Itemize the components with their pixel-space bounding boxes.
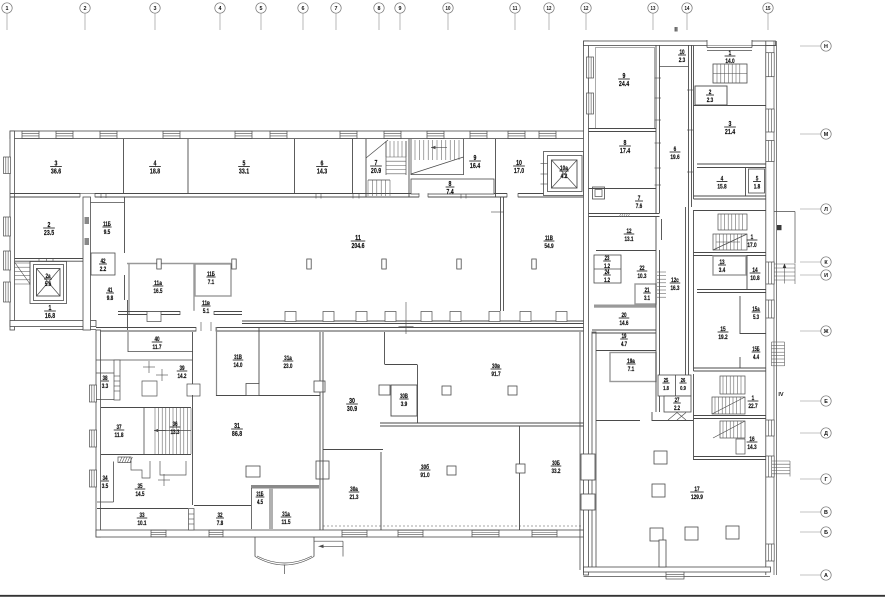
svg-text:86.8: 86.8 bbox=[232, 429, 242, 438]
svg-text:14.0: 14.0 bbox=[233, 362, 242, 369]
svg-text:7.4: 7.4 bbox=[446, 187, 453, 196]
svg-text:204.6: 204.6 bbox=[351, 241, 364, 250]
svg-text:И: И bbox=[824, 273, 828, 279]
svg-text:7.6: 7.6 bbox=[636, 203, 643, 210]
svg-text:3.3: 3.3 bbox=[102, 383, 109, 390]
svg-text:19.2: 19.2 bbox=[718, 334, 728, 341]
svg-text:11: 11 bbox=[513, 6, 518, 12]
svg-text:3.9: 3.9 bbox=[401, 401, 408, 408]
svg-text:54.9: 54.9 bbox=[544, 243, 554, 250]
svg-text:11.7: 11.7 bbox=[152, 344, 161, 351]
svg-text:19.6: 19.6 bbox=[670, 154, 680, 161]
svg-text:17.0: 17.0 bbox=[514, 166, 524, 175]
svg-text:91.7: 91.7 bbox=[491, 371, 501, 378]
svg-text:5.6: 5.6 bbox=[45, 281, 52, 288]
svg-text:Н: Н bbox=[824, 44, 828, 50]
svg-text:7.8: 7.8 bbox=[217, 520, 224, 527]
svg-text:2.2: 2.2 bbox=[674, 406, 681, 412]
svg-text:21.3: 21.3 bbox=[349, 494, 358, 501]
svg-text:14.5: 14.5 bbox=[135, 491, 144, 498]
svg-text:7.1: 7.1 bbox=[628, 366, 635, 373]
svg-text:5.1: 5.1 bbox=[203, 308, 210, 315]
svg-text:7: 7 bbox=[335, 6, 338, 12]
svg-text:1.8: 1.8 bbox=[663, 386, 669, 392]
svg-text:11.5: 11.5 bbox=[281, 519, 290, 526]
svg-text:14: 14 bbox=[685, 6, 690, 12]
svg-text:10.3: 10.3 bbox=[637, 273, 646, 280]
svg-text:17.4: 17.4 bbox=[620, 146, 630, 155]
svg-text:Л: Л bbox=[824, 207, 828, 213]
svg-text:Ж: Ж bbox=[823, 329, 829, 335]
svg-text:16.5: 16.5 bbox=[153, 288, 162, 295]
svg-text:9.8: 9.8 bbox=[107, 295, 114, 302]
svg-text:15: 15 bbox=[766, 6, 771, 12]
svg-text:10.1: 10.1 bbox=[137, 520, 146, 527]
svg-text:129.9: 129.9 bbox=[691, 494, 703, 501]
svg-text:14.3: 14.3 bbox=[747, 444, 757, 451]
svg-text:3.5: 3.5 bbox=[102, 483, 109, 490]
svg-text:IV: IV bbox=[778, 392, 784, 398]
svg-text:18.8: 18.8 bbox=[150, 166, 160, 175]
svg-text:14.0: 14.0 bbox=[725, 58, 735, 65]
svg-text:4: 4 bbox=[219, 6, 222, 12]
svg-text:4.2: 4.2 bbox=[561, 173, 568, 180]
svg-text:4.7: 4.7 bbox=[621, 342, 628, 348]
svg-text:91.0: 91.0 bbox=[420, 472, 430, 479]
svg-text:14.6: 14.6 bbox=[619, 320, 628, 327]
svg-text:2: 2 bbox=[84, 6, 87, 12]
svg-text:12: 12 bbox=[547, 6, 552, 12]
svg-text:8: 8 bbox=[378, 6, 381, 12]
svg-text:1.8: 1.8 bbox=[754, 183, 761, 190]
svg-text:1: 1 bbox=[6, 6, 9, 12]
svg-text:10: 10 bbox=[446, 6, 451, 12]
svg-text:5.3: 5.3 bbox=[753, 315, 760, 321]
svg-text:16.8: 16.8 bbox=[45, 311, 55, 320]
svg-text:23.5: 23.5 bbox=[44, 228, 54, 237]
svg-text:16.3: 16.3 bbox=[670, 285, 679, 292]
svg-text:2.2: 2.2 bbox=[100, 266, 107, 273]
svg-text:13.3: 13.3 bbox=[170, 429, 179, 436]
svg-text:3.1: 3.1 bbox=[644, 296, 651, 302]
svg-text:3: 3 bbox=[154, 6, 157, 12]
svg-text:36.6: 36.6 bbox=[51, 166, 61, 175]
svg-text:11.8: 11.8 bbox=[114, 432, 123, 439]
svg-text:30.9: 30.9 bbox=[347, 404, 357, 413]
svg-text:10.8: 10.8 bbox=[750, 275, 760, 282]
svg-text:4.5: 4.5 bbox=[257, 500, 264, 506]
svg-text:14.3: 14.3 bbox=[317, 166, 327, 175]
svg-text:33.1: 33.1 bbox=[239, 166, 249, 175]
svg-text:5: 5 bbox=[260, 6, 263, 12]
svg-text:13.1: 13.1 bbox=[624, 236, 633, 243]
svg-text:А: А bbox=[824, 573, 828, 579]
svg-text:23.0: 23.0 bbox=[283, 363, 292, 370]
svg-text:33.2: 33.2 bbox=[551, 468, 560, 475]
svg-text:Г: Г bbox=[824, 477, 827, 483]
svg-text:Б: Б bbox=[824, 530, 828, 536]
svg-text:0.9: 0.9 bbox=[680, 386, 686, 392]
svg-text:15.8: 15.8 bbox=[717, 183, 727, 190]
svg-text:12: 12 bbox=[584, 6, 589, 12]
svg-text:13: 13 bbox=[651, 6, 656, 12]
svg-text:24.4: 24.4 bbox=[619, 79, 629, 88]
svg-text:16.4: 16.4 bbox=[470, 161, 480, 170]
svg-text:II: II bbox=[674, 27, 678, 34]
svg-text:21.4: 21.4 bbox=[725, 127, 735, 136]
svg-text:17.0: 17.0 bbox=[747, 242, 757, 249]
svg-text:2.3: 2.3 bbox=[707, 97, 714, 104]
svg-text:4.4: 4.4 bbox=[753, 355, 760, 361]
svg-text:22.7: 22.7 bbox=[748, 403, 758, 410]
svg-text:6: 6 bbox=[302, 6, 305, 12]
svg-text:2.3: 2.3 bbox=[679, 57, 686, 64]
svg-text:В: В bbox=[824, 510, 828, 516]
svg-text:7.1: 7.1 bbox=[208, 279, 215, 286]
svg-text:М: М bbox=[824, 132, 829, 138]
svg-text:20.9: 20.9 bbox=[371, 166, 381, 175]
svg-text:Д: Д bbox=[824, 431, 828, 437]
svg-text:9: 9 bbox=[399, 6, 402, 12]
svg-text:14.2: 14.2 bbox=[177, 373, 186, 380]
svg-text:1.2: 1.2 bbox=[604, 278, 611, 284]
svg-text:30б: 30б bbox=[421, 463, 429, 471]
svg-text:Е: Е bbox=[824, 399, 828, 405]
svg-text:3.4: 3.4 bbox=[719, 267, 726, 274]
svg-text:9.5: 9.5 bbox=[104, 229, 111, 236]
